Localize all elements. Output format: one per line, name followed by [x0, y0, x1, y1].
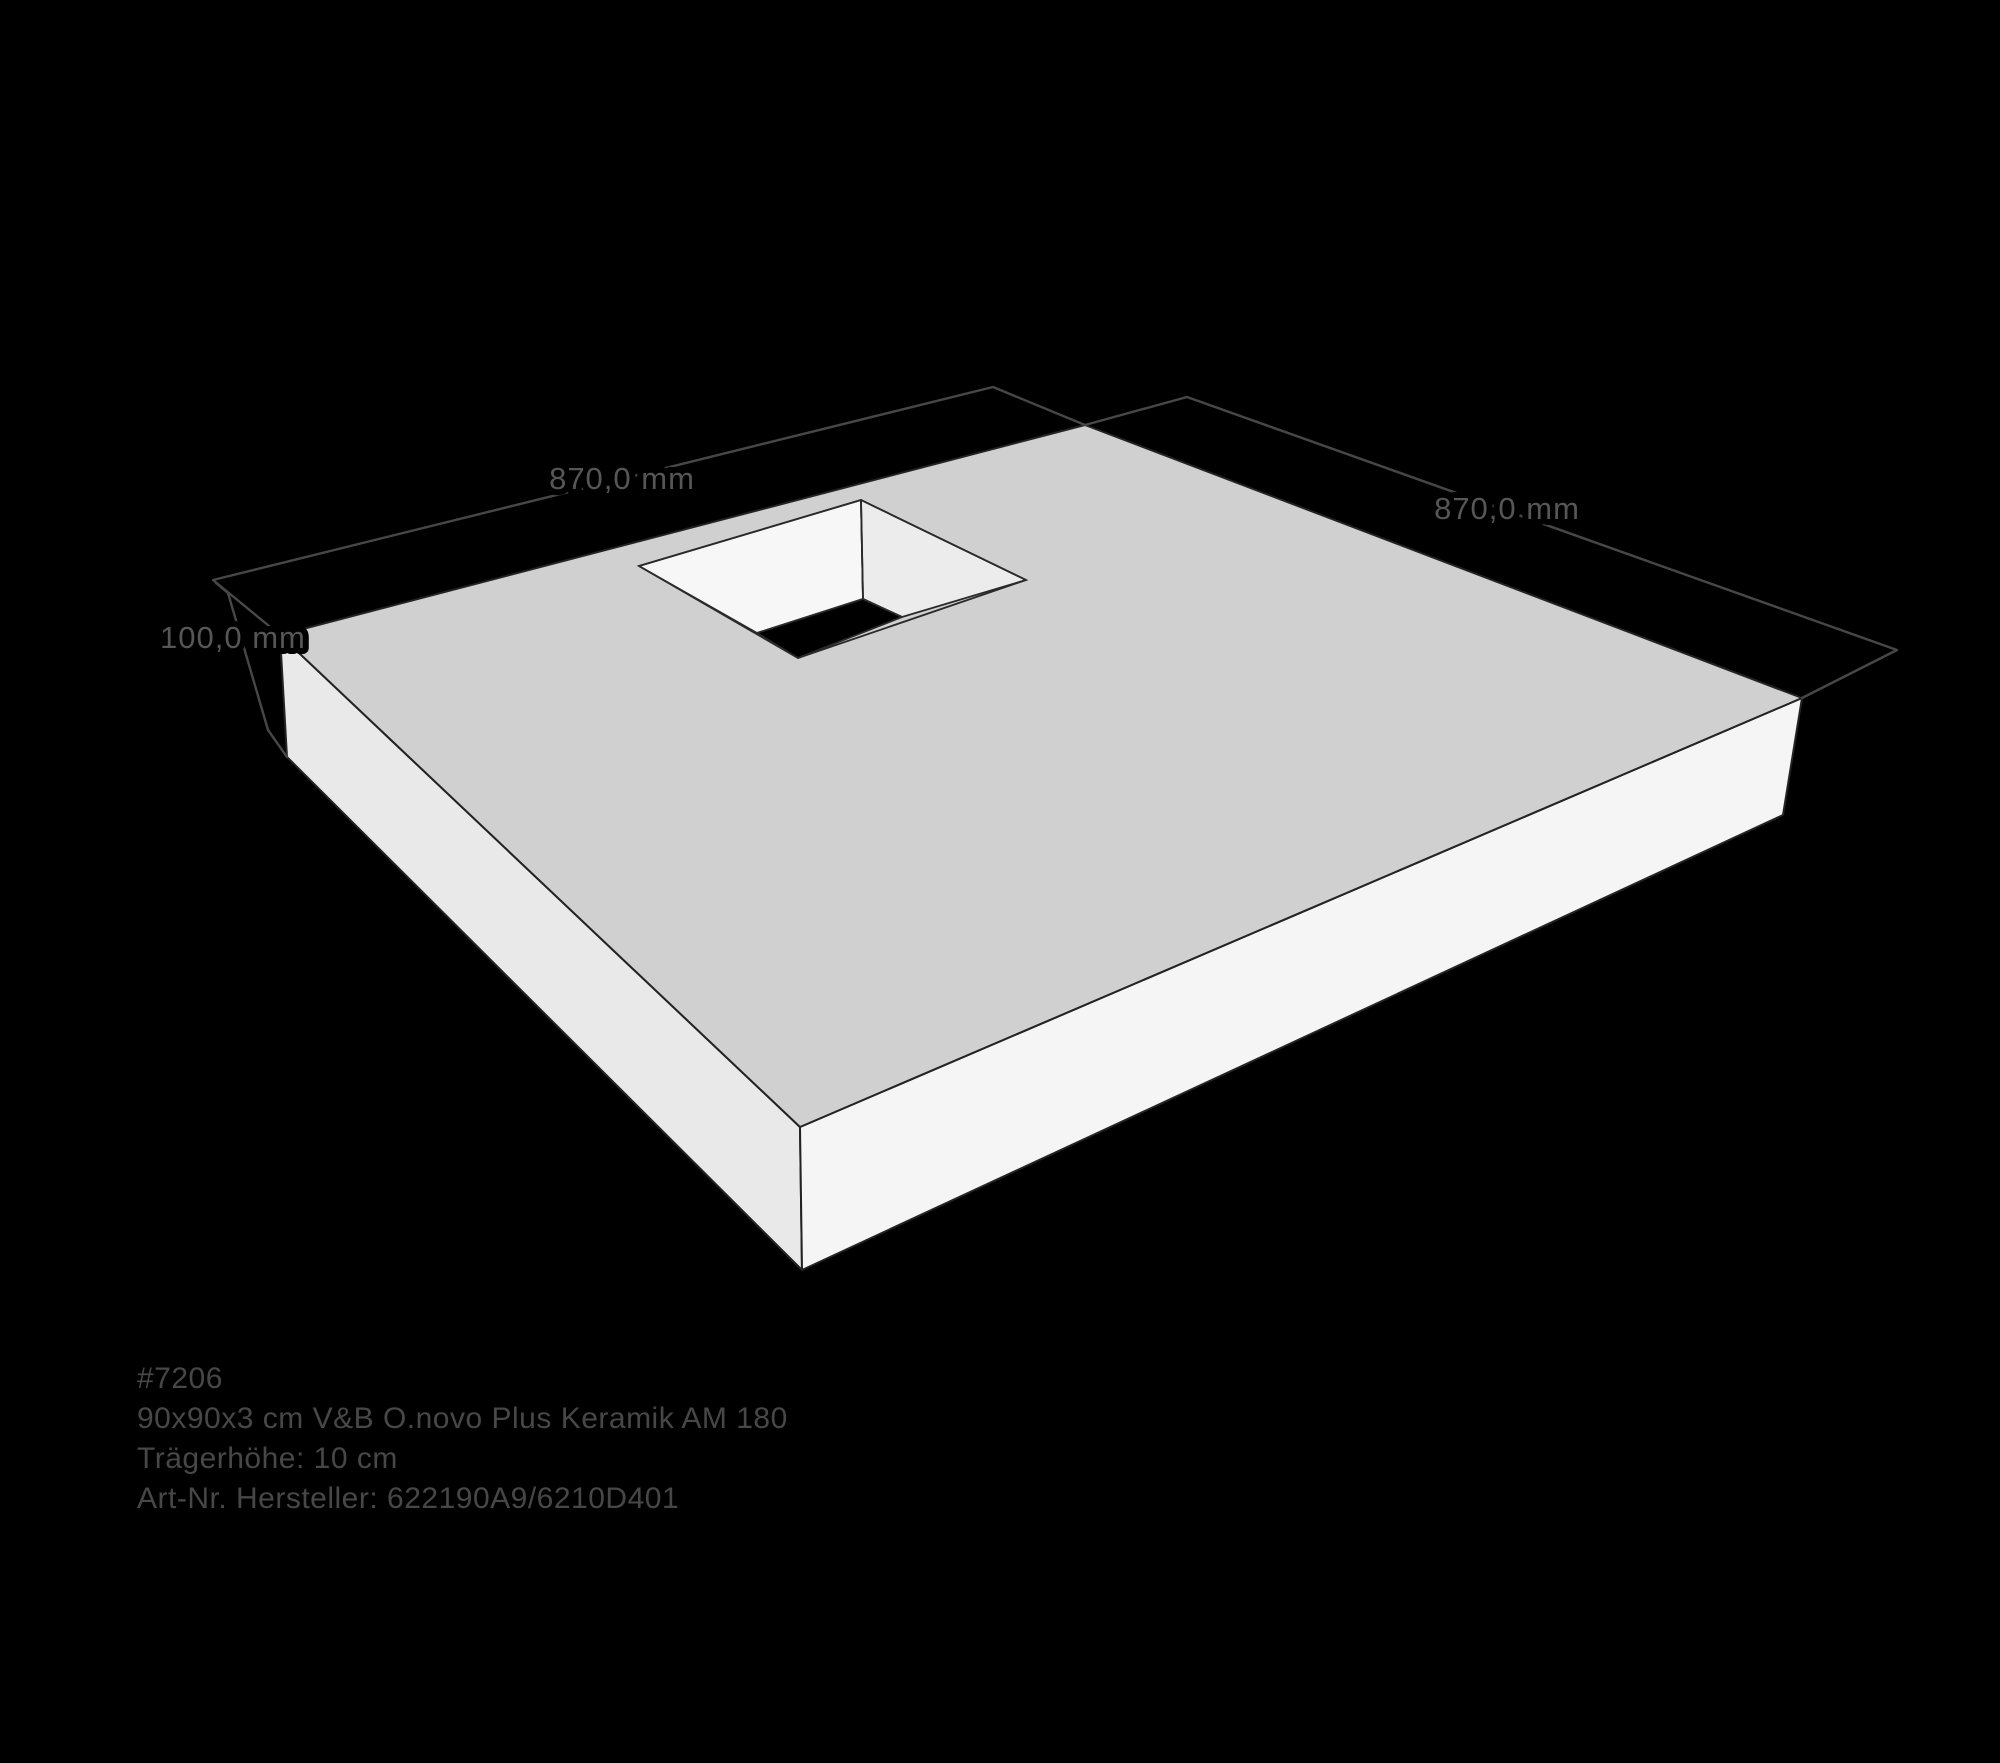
- product-description-text: 90x90x3 cm V&B O.novo Plus Keramik AM 18…: [137, 1402, 788, 1435]
- left-width-dimension-label: 870,0 mm: [549, 461, 695, 496]
- right-width-dimension-label: 870,0 mm: [1434, 491, 1580, 526]
- product-id-text: #7206: [137, 1362, 223, 1395]
- cad-viewport: 870,0 mm 870,0 mm 100,0 mm #7206 90x90x3…: [0, 0, 2000, 1763]
- article-number-text: Art-Nr. Hersteller: 622190A9/6210D401: [137, 1482, 679, 1515]
- support-height-text: Trägerhöhe: 10 cm: [137, 1442, 398, 1475]
- shower-tray-diagram: 870,0 mm 870,0 mm 100,0 mm #7206 90x90x3…: [0, 0, 2000, 1763]
- height-dimension-label: 100,0 mm: [160, 620, 306, 655]
